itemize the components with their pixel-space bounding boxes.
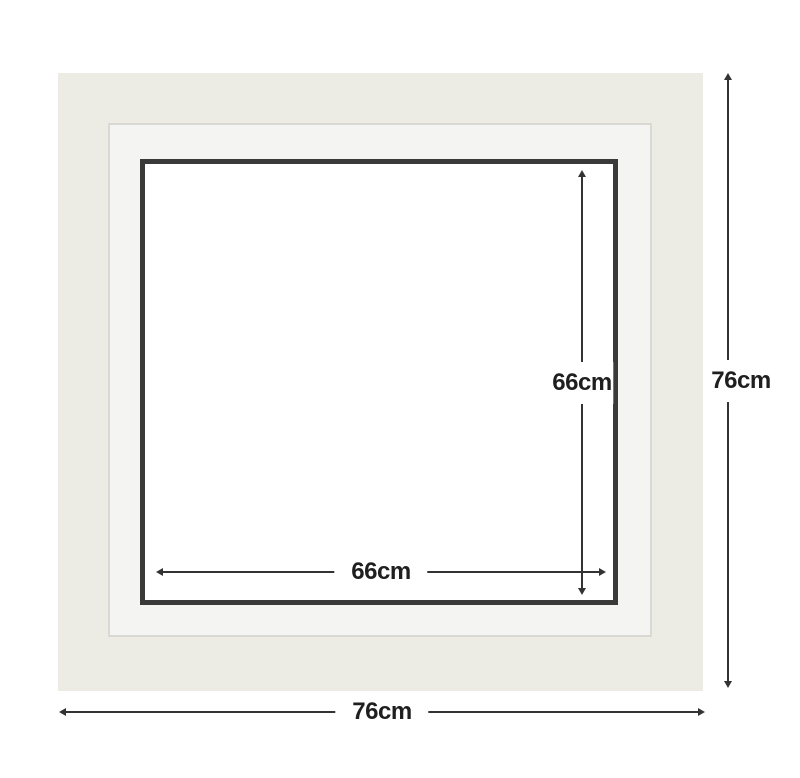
arrowhead-left-icon [59,708,66,716]
arrowhead-left-icon [156,568,163,576]
opening-width-label: 66cm [334,557,427,587]
frame-height-label: 76cm [709,360,772,402]
opening-height-label: 66cm [550,362,613,404]
frame-dimension-diagram: 66cm 66cm 76cm 76cm [0,0,800,778]
arrowhead-up-icon [724,73,732,80]
arrowhead-down-icon [578,588,586,595]
frame-opening [140,159,618,605]
arrowhead-down-icon [724,681,732,688]
frame-width-label: 76cm [335,697,428,727]
arrowhead-up-icon [578,170,586,177]
arrowhead-right-icon [698,708,705,716]
arrowhead-right-icon [599,568,606,576]
